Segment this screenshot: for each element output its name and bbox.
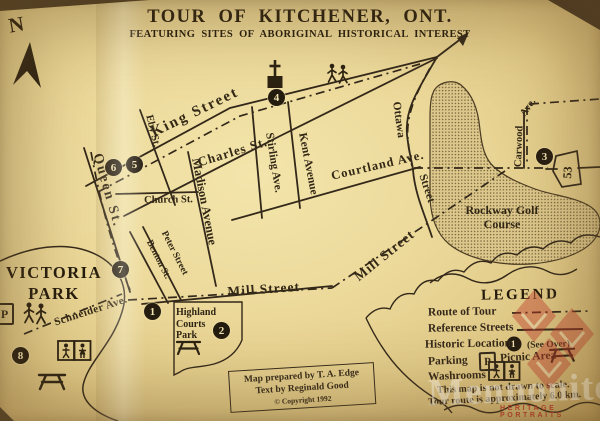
parking-icon-victoria-park: P <box>0 303 14 325</box>
map-title: TOUR OF KITCHENER, ONT. <box>130 7 470 28</box>
picnic-table-icon-highland-park <box>177 342 200 354</box>
historic-marker-2: 2 <box>213 322 230 339</box>
street-kent <box>288 102 300 208</box>
street-stirling <box>252 107 262 218</box>
street-label-church: Church St. <box>144 195 193 206</box>
highway-53-road-east <box>578 167 600 168</box>
legend-route-of-tour: Route of Tour <box>428 305 497 318</box>
historic-marker-6: 6 <box>105 159 122 176</box>
rockway-golf-course-area <box>430 82 600 265</box>
credits-box: Map prepared by T. A. Edge Text by Regin… <box>228 362 376 413</box>
historic-marker-5: 5 <box>126 156 143 173</box>
legend-border-inner-wave <box>430 267 577 283</box>
historic-marker-3: 3 <box>536 148 553 165</box>
watermark-tagline-text: HERITAGE PORTRAITS <box>500 405 600 419</box>
rockway-golf-course-label: Rockway Golf Course <box>452 203 552 232</box>
legend-parking: Parking <box>428 354 468 367</box>
picnic-table-icon-victoria-park <box>39 375 65 389</box>
route-top-right <box>530 99 600 104</box>
north-arrow-icon <box>13 42 41 88</box>
highway-53-label: 53 <box>561 166 574 179</box>
historic-marker-8: 8 <box>12 347 29 364</box>
historic-marker-1: 1 <box>144 303 161 320</box>
church-icon <box>268 60 283 88</box>
scanned-tour-map: TOUR OF KITCHENER, ONT. FEATURING SITES … <box>0 0 600 421</box>
street-label-carwood: Carwood <box>514 126 526 168</box>
historic-marker-4: 4 <box>268 89 285 106</box>
historic-marker-7: 7 <box>112 261 129 278</box>
victoria-park-label: VICTORIA PARK <box>4 262 104 305</box>
walkers-icon-victoria-park <box>25 303 46 324</box>
washrooms-icon-victoria-park <box>58 341 91 360</box>
map-subtitle: FEATURING SITES OF ABORIGINAL HISTORICAL… <box>115 29 485 40</box>
king-street-continuation <box>437 38 462 57</box>
